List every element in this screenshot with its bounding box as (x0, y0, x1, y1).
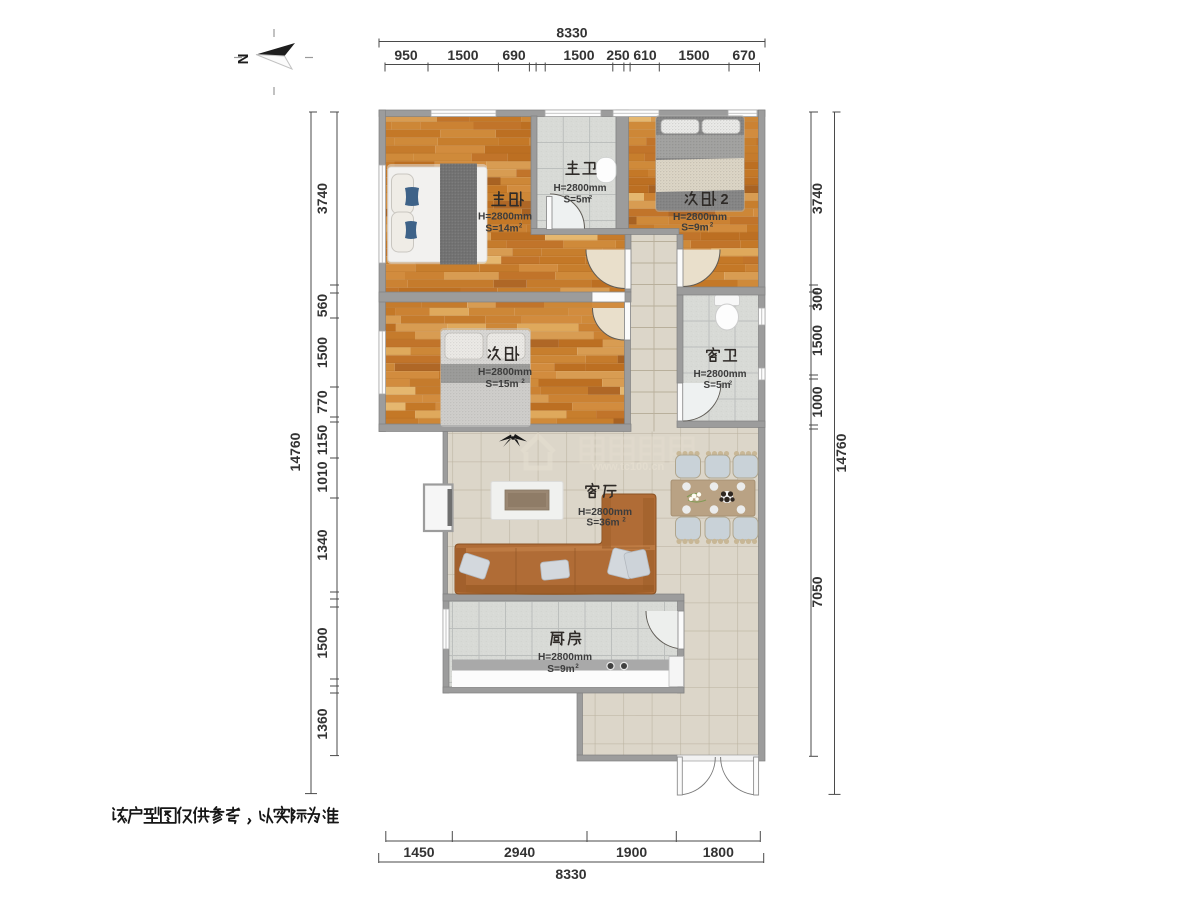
svg-text:1500: 1500 (809, 325, 825, 356)
svg-text:H=2800mm: H=2800mm (478, 367, 532, 378)
svg-text:S=14m: S=14m (485, 224, 518, 235)
svg-text:2940: 2940 (504, 844, 535, 860)
svg-text:3740: 3740 (314, 183, 330, 214)
svg-text:H=2800mm: H=2800mm (693, 369, 746, 380)
svg-text:670: 670 (732, 47, 756, 63)
svg-text:14760: 14760 (833, 433, 849, 472)
svg-text:1500: 1500 (314, 627, 330, 658)
svg-text:7050: 7050 (809, 576, 825, 607)
svg-text:S=9m: S=9m (681, 223, 708, 234)
svg-text:www.tc100.cn: www.tc100.cn (591, 461, 665, 473)
svg-text:H=2800mm: H=2800mm (538, 652, 592, 663)
svg-text:1500: 1500 (447, 47, 478, 63)
svg-text:2: 2 (720, 192, 728, 208)
svg-text:H=2800mm: H=2800mm (553, 183, 606, 194)
svg-text:300: 300 (809, 287, 825, 311)
svg-text:S=5m: S=5m (564, 195, 591, 206)
svg-text:H=2800mm: H=2800mm (673, 212, 727, 223)
svg-text:610: 610 (633, 47, 657, 63)
svg-text:N: N (235, 54, 252, 65)
svg-text:560: 560 (314, 294, 330, 318)
svg-text:14760: 14760 (287, 432, 303, 471)
svg-text:8330: 8330 (555, 866, 586, 882)
svg-text:2: 2 (589, 195, 592, 201)
svg-text:1000: 1000 (809, 386, 825, 417)
svg-text:1340: 1340 (314, 529, 330, 560)
svg-text:1800: 1800 (703, 844, 734, 860)
svg-text:3740: 3740 (809, 183, 825, 214)
svg-text:250: 250 (606, 47, 630, 63)
svg-text:S=5m: S=5m (704, 380, 731, 391)
svg-text:1150: 1150 (314, 425, 330, 456)
svg-text:S=15m: S=15m (485, 379, 518, 390)
svg-text:1450: 1450 (403, 844, 434, 860)
svg-text:690: 690 (502, 47, 526, 63)
svg-text:H=2800mm: H=2800mm (578, 507, 632, 518)
svg-text:1500: 1500 (314, 337, 330, 368)
svg-text:1500: 1500 (678, 47, 709, 63)
svg-text:2: 2 (729, 381, 732, 387)
svg-text:1500: 1500 (563, 47, 594, 63)
svg-text:1010: 1010 (314, 461, 330, 492)
svg-text:950: 950 (394, 47, 418, 63)
svg-text:S=9m: S=9m (547, 664, 574, 675)
svg-text:1900: 1900 (616, 844, 647, 860)
svg-text:770: 770 (314, 390, 330, 414)
svg-text:H=2800mm: H=2800mm (478, 212, 532, 223)
svg-text:8330: 8330 (556, 25, 587, 41)
svg-text:S=36m: S=36m (586, 518, 619, 529)
svg-text:1360: 1360 (314, 708, 330, 739)
